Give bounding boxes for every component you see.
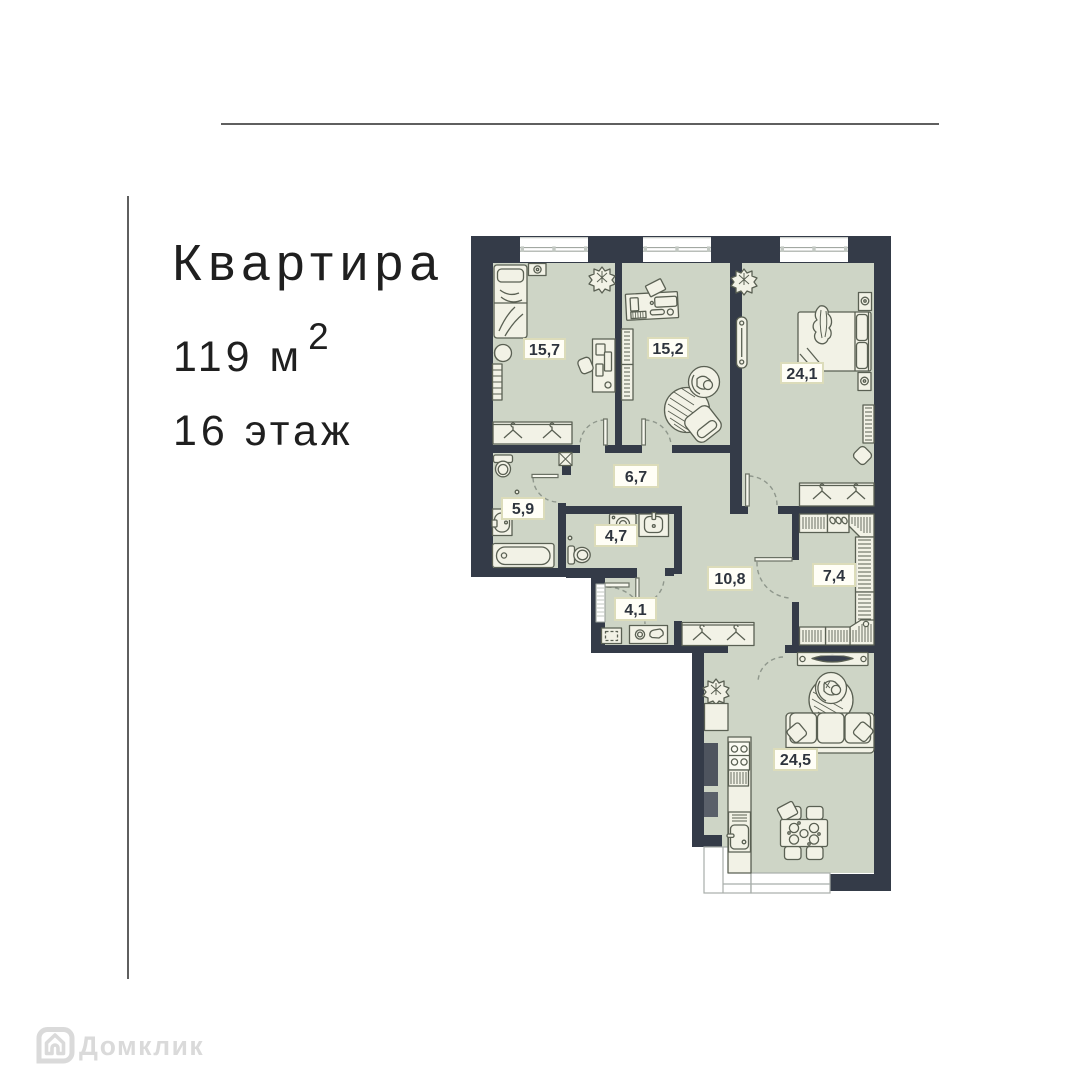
svg-text:5,9: 5,9: [512, 501, 534, 518]
svg-text:10,8: 10,8: [714, 571, 745, 588]
svg-text:6,7: 6,7: [625, 469, 647, 486]
svg-text:24,1: 24,1: [786, 366, 817, 383]
svg-text:24,5: 24,5: [780, 752, 811, 769]
svg-text:4,1: 4,1: [624, 602, 646, 619]
svg-text:Домклик: Домклик: [79, 1031, 204, 1061]
svg-text:4,7: 4,7: [605, 528, 627, 545]
svg-text:15,7: 15,7: [529, 342, 560, 359]
svg-text:15,2: 15,2: [652, 341, 683, 358]
svg-text:7,4: 7,4: [823, 568, 845, 585]
